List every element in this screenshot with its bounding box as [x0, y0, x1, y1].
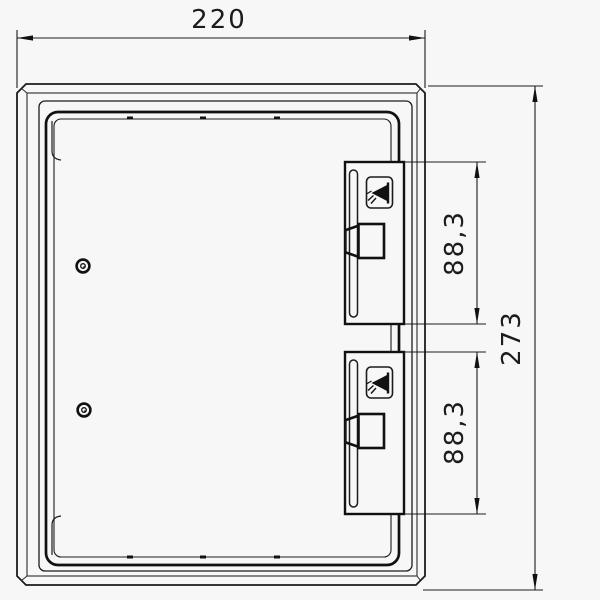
arrowhead-up — [532, 86, 537, 102]
arrowhead-up — [474, 352, 479, 368]
arrowhead-left — [17, 35, 33, 40]
press-indicator-icon — [367, 367, 393, 398]
arrowhead-down — [474, 308, 479, 324]
press-indicator-icon — [367, 177, 393, 208]
hinge-notch-bottom — [52, 516, 61, 555]
latch-upper — [345, 162, 404, 324]
screw-head-icon — [78, 404, 91, 417]
arrowhead-down — [474, 498, 479, 514]
screw-head-icon — [77, 260, 90, 273]
hinge-notch-top — [52, 121, 61, 160]
arrowhead-right — [409, 35, 425, 40]
dimension-width-label: 220 — [179, 6, 259, 34]
dimension-latch-lower-label: 88,3 — [441, 377, 469, 487]
door-inner-edge — [54, 119, 391, 557]
arrowhead-up — [474, 162, 479, 178]
dimension-latch-upper-label: 88,3 — [441, 188, 469, 298]
dimension-height-label: 273 — [498, 283, 526, 393]
latch-lower — [345, 352, 404, 514]
drawing-canvas: 220 273 88,3 88,3 — [0, 0, 600, 600]
dimension-width — [17, 30, 425, 88]
arrowhead-down — [532, 574, 537, 590]
